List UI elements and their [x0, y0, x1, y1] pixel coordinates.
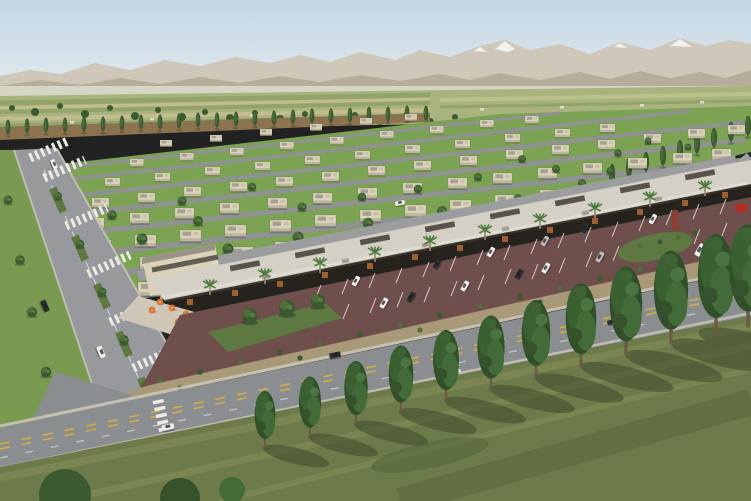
- house: [280, 142, 294, 151]
- house: [368, 166, 385, 177]
- house: [175, 208, 194, 220]
- house: [276, 177, 293, 188]
- house: [270, 220, 291, 233]
- house: [205, 167, 220, 176]
- house: [160, 140, 172, 148]
- house: [360, 118, 372, 126]
- house: [405, 145, 420, 154]
- house: [260, 129, 272, 137]
- house: [322, 172, 339, 183]
- house: [220, 203, 239, 215]
- house: [555, 129, 570, 138]
- house: [313, 193, 332, 205]
- house: [480, 120, 494, 129]
- house: [230, 148, 244, 157]
- house: [405, 114, 417, 122]
- house: [525, 116, 539, 125]
- house: [448, 178, 467, 190]
- scene-canvas: [0, 0, 751, 501]
- house: [493, 173, 512, 185]
- umbrella: [157, 299, 165, 306]
- house: [105, 178, 120, 187]
- house: [230, 182, 247, 193]
- house: [155, 173, 170, 182]
- house: [380, 131, 394, 140]
- house: [414, 161, 431, 172]
- house: [180, 230, 201, 243]
- house: [673, 153, 692, 165]
- house: [455, 140, 470, 149]
- house: [552, 145, 569, 156]
- house: [728, 125, 745, 136]
- house: [130, 159, 144, 168]
- house: [315, 215, 336, 228]
- house: [598, 140, 615, 151]
- house: [305, 156, 320, 165]
- house: [268, 198, 287, 210]
- house: [180, 153, 194, 162]
- entry-sculpture: [672, 210, 678, 230]
- house: [505, 134, 520, 143]
- house: [583, 163, 602, 175]
- house: [628, 158, 647, 170]
- house: [184, 187, 201, 198]
- house: [138, 193, 155, 204]
- house: [355, 151, 370, 160]
- house: [255, 162, 270, 171]
- house: [225, 225, 246, 238]
- house: [688, 129, 705, 140]
- aerial-rendering: [0, 0, 751, 501]
- house: [460, 156, 477, 167]
- house: [330, 137, 344, 146]
- house: [210, 135, 222, 143]
- house: [310, 124, 322, 132]
- house: [130, 213, 149, 225]
- house: [600, 124, 615, 133]
- house: [430, 126, 444, 135]
- monument-sign: [735, 204, 747, 212]
